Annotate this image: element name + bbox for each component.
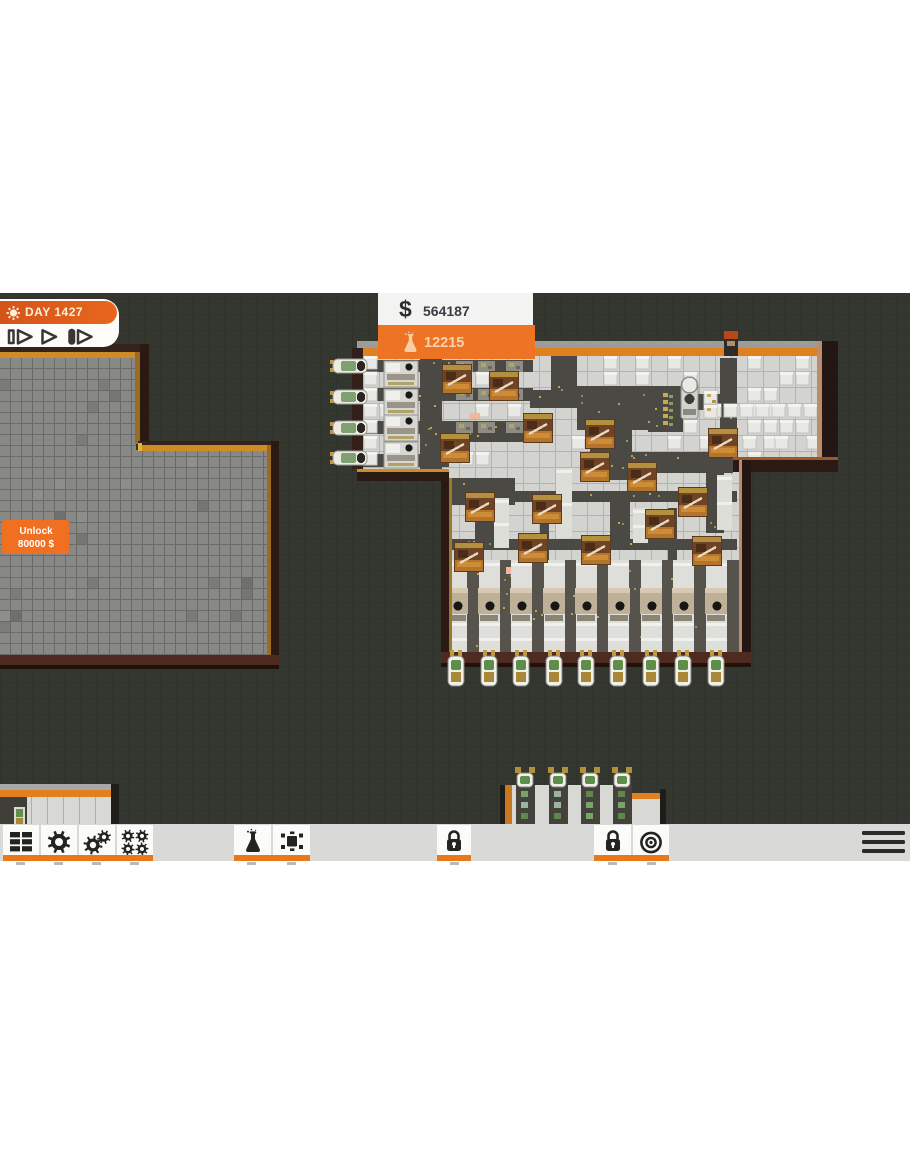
svg-text:Unlock: Unlock	[19, 526, 53, 537]
svg-text:80000 $: 80000 $	[18, 539, 55, 550]
